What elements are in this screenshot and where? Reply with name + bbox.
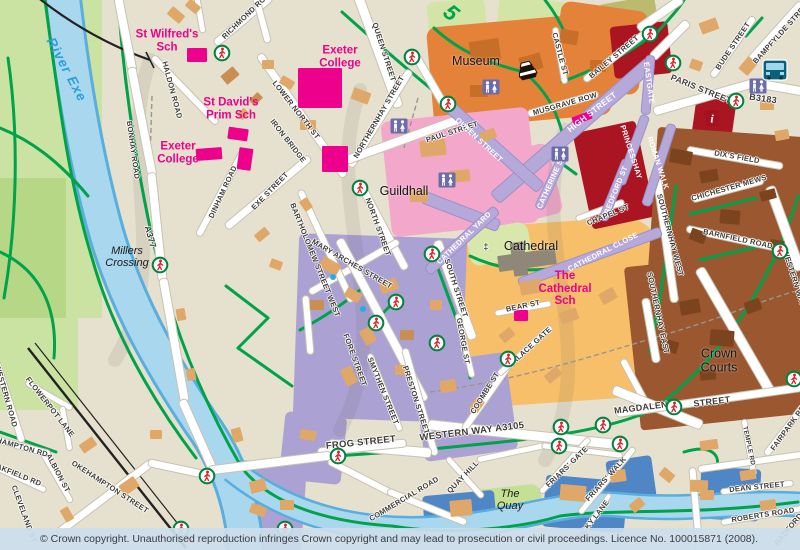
copyright-text: © Crown copyright. Unauthorised reproduc… [40, 533, 758, 545]
crossing-icon [330, 448, 347, 465]
crossing-icon [612, 436, 629, 453]
building [709, 329, 734, 347]
building [280, 500, 294, 510]
road-segment [159, 278, 188, 402]
crossing-icon [772, 243, 789, 260]
crossing-icon [424, 246, 441, 263]
building [167, 6, 186, 24]
building [196, 147, 223, 161]
building [186, 368, 197, 381]
street-label-oakfield-rd: OAKFIELD RD [0, 460, 42, 487]
street-label-albion-st: ALBION ST [45, 452, 72, 493]
poi-label-st-wilfreds-sch: St Wilfred's Sch [136, 28, 199, 53]
building [79, 436, 98, 453]
building [227, 127, 248, 142]
poi-label-millers-crossing: Millers Crossing [105, 245, 148, 269]
poi-label-the-cathedral-sch: The Cathedral Sch [538, 270, 591, 308]
building [220, 66, 239, 85]
crossing-icon [642, 26, 659, 43]
building [719, 209, 740, 225]
poi-label-cathedral: Cathedral [504, 240, 558, 254]
building [699, 439, 718, 451]
crossing-icon [440, 96, 457, 113]
crossing-icon [404, 49, 421, 66]
info-icon: i [706, 110, 719, 126]
toilets-icon [439, 173, 456, 188]
building [559, 484, 586, 502]
bluedot-icon [360, 306, 367, 313]
building [449, 499, 472, 517]
building [230, 427, 243, 443]
street-label-b3183: B3183 [749, 93, 778, 106]
building [322, 146, 348, 172]
crossing-icon [665, 55, 682, 72]
building [150, 430, 162, 439]
crossing-icon [429, 335, 446, 352]
crossing-icon [388, 294, 405, 311]
crossing-icon [214, 45, 231, 62]
building [698, 17, 719, 34]
building [269, 258, 283, 271]
crossing-icon [352, 180, 369, 197]
toilets-icon [552, 147, 569, 162]
building [689, 58, 704, 72]
crossing-icon [500, 351, 517, 368]
building [254, 227, 271, 243]
street-label-exe-street: EXE STREET [250, 171, 290, 212]
building [690, 480, 709, 493]
poi-label-guildhall: Guildhall [380, 185, 429, 199]
poi-label-crown-courts: Crown Courts [701, 347, 738, 375]
building [400, 330, 414, 340]
crossing-icon [152, 257, 169, 274]
bus-icon [762, 59, 788, 81]
copyright-bar: © Crown copyright. Unauthorised reproduc… [0, 528, 800, 550]
toilets-icon [483, 80, 500, 95]
street-label-dinham-road: DINHAM ROAD [208, 165, 239, 220]
poi-label-museum: Museum [452, 55, 500, 69]
crossing-icon [728, 93, 745, 110]
crossing-icon [551, 438, 568, 455]
building [430, 300, 442, 310]
bluedot-icon [330, 274, 337, 281]
poi-label-the-quay: The Quay [497, 488, 523, 512]
crossing-icon [666, 399, 683, 416]
building [262, 60, 274, 69]
crossing-icon [553, 419, 570, 436]
poi-label-st-davids-prim-sch: St David's Prim Sch [203, 96, 258, 121]
museum-icon [514, 59, 540, 81]
poi-label-exeter-college-north: Exeter College [319, 44, 361, 69]
poi-label-exeter-college-west: Exeter College [157, 140, 199, 165]
toilets-icon [391, 119, 408, 134]
building [298, 68, 342, 108]
building [350, 87, 371, 104]
building [310, 300, 324, 310]
building [658, 467, 675, 484]
building [176, 308, 187, 321]
street-label-cathedral-symbol: ‡ [483, 243, 488, 252]
street-label-okehampton-rd: OKEHAMPTON RD [0, 432, 49, 459]
crossing-icon [368, 315, 385, 332]
crossing-icon [199, 468, 216, 485]
road-segment [114, 0, 136, 73]
map-canvas: QUEEN STREETRICHMOND ROADHALDON ROADBONH… [0, 0, 800, 550]
road-segment [178, 399, 217, 474]
crossing-icon [786, 371, 800, 388]
crossing-icon [595, 417, 612, 434]
